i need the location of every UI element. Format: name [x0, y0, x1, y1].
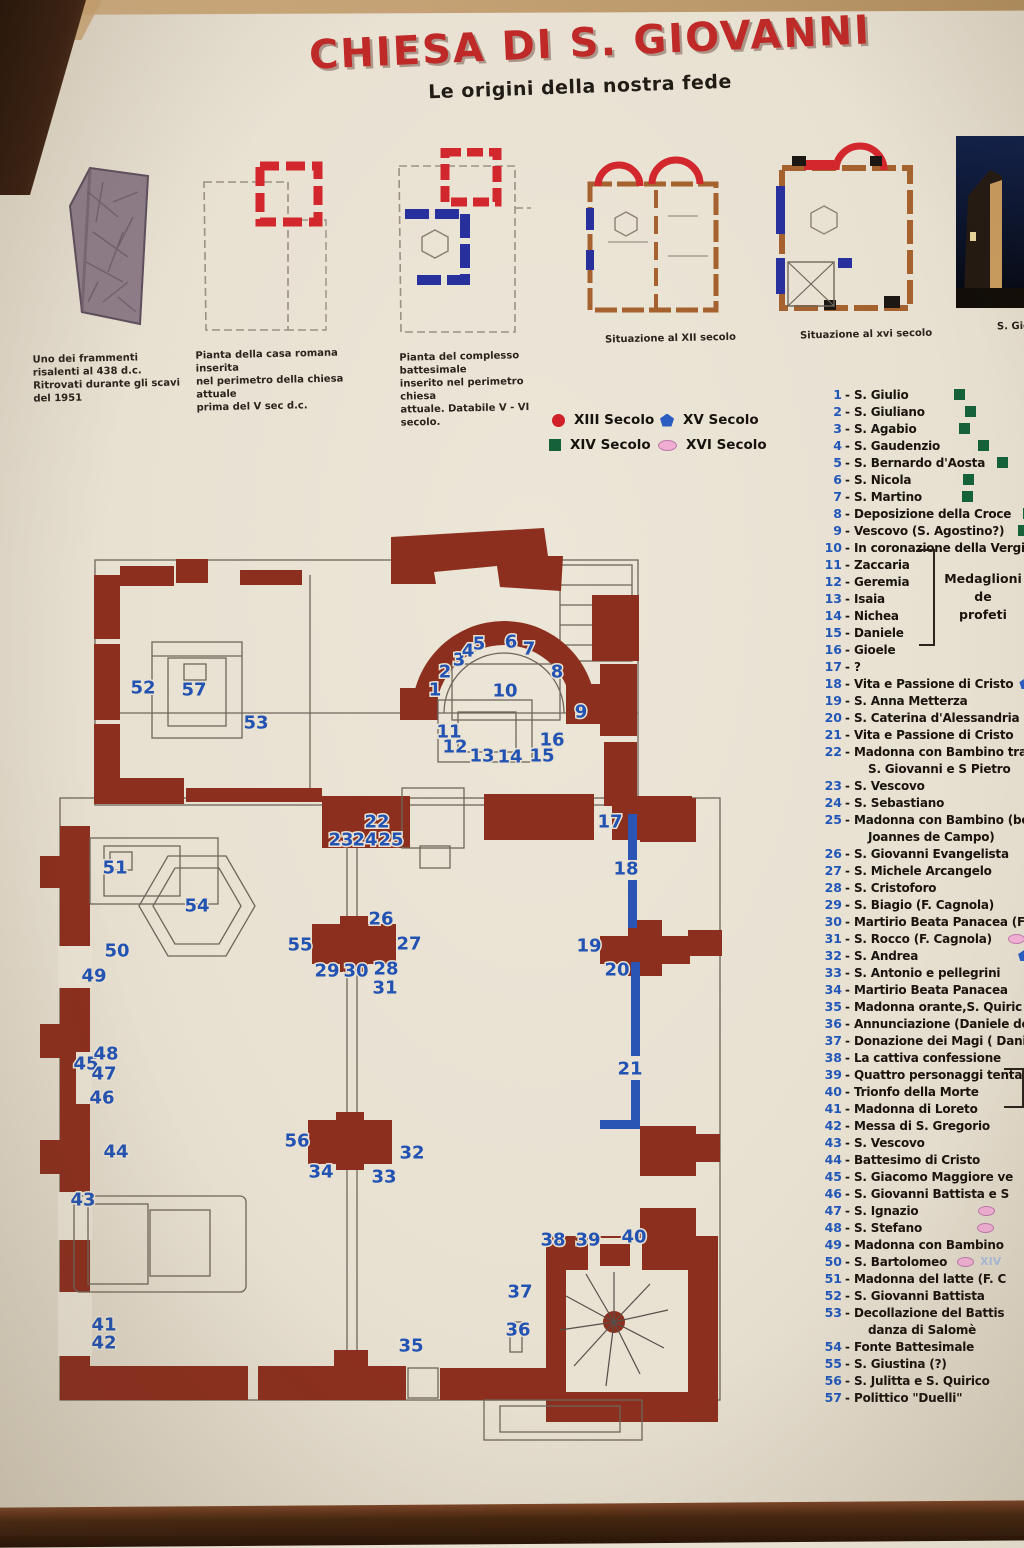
item-number: 50 — [816, 1254, 842, 1269]
list-item-21: 21-Vita e Passione di Cristo — [816, 726, 1024, 743]
item-number: 12 — [816, 574, 842, 589]
list-item-36: 36-Annunciazione (Daniele de — [816, 1015, 1024, 1032]
item-dash: - — [845, 915, 850, 929]
item-dash: - — [845, 1102, 850, 1116]
item-text-wrap: danza di Salomè — [868, 1323, 976, 1337]
item-number: 45 — [816, 1169, 842, 1184]
item-dash: - — [845, 1357, 850, 1371]
green-square-marker — [963, 474, 974, 485]
list-item-32: 32-S. Andrea — [816, 947, 1024, 964]
list-item-22: 22-Madonna con Bambino tra — [816, 743, 1024, 760]
item-dash: - — [845, 1374, 850, 1388]
list-item-37: 37-Donazione dei Magi ( Dani — [816, 1032, 1024, 1049]
plan-number-56: 56 — [284, 1131, 309, 1152]
item-number: 37 — [816, 1033, 842, 1048]
item-dash: - — [845, 643, 850, 657]
item-number: 49 — [816, 1237, 842, 1252]
item-text: S. Anna Metterza — [854, 694, 968, 708]
item-number: 17 — [816, 659, 842, 674]
artwork-list: 1-S. Giulio2-S. Giuliano3-S. Agabio4-S. … — [816, 386, 1024, 1416]
item-text: S. Giacomo Maggiore ve — [854, 1170, 1013, 1184]
list-item-42: 42-Messa di S. Gregorio — [816, 1117, 1024, 1134]
item-text: S. Caterina d'Alessandria — [854, 711, 1019, 725]
item-dash: - — [845, 1051, 850, 1065]
item-text: Vita e Passione di Cristo — [854, 728, 1013, 742]
item-number: 9 — [816, 523, 842, 538]
list-item-44: 44-Battesimo di Cristo — [816, 1151, 1024, 1168]
item-text: Battesimo di Cristo — [854, 1153, 980, 1167]
item-text: Madonna con Bambino tra — [854, 745, 1024, 759]
item-dash: - — [845, 473, 850, 487]
item-number: 1 — [816, 387, 842, 402]
item-number: 5 — [816, 455, 842, 470]
item-number: 20 — [816, 710, 842, 725]
plan-number-5: 5 — [473, 634, 486, 655]
plan-number-50: 50 — [104, 941, 129, 962]
list-item-9: 9-Vescovo (S. Agostino?) — [816, 522, 1024, 539]
item-dash: - — [845, 1187, 850, 1201]
plan-number-18: 18 — [613, 859, 638, 880]
item-dash: - — [845, 1391, 850, 1405]
pink-ellipse-marker — [978, 1206, 995, 1216]
item-text: S. Nicola — [854, 473, 911, 487]
item-number: 16 — [816, 642, 842, 657]
item-number: 31 — [816, 931, 842, 946]
list-item-34: 34-Martirio Beata Panacea — [816, 981, 1024, 998]
item-number: 44 — [816, 1152, 842, 1167]
plan-number-25: 25 — [378, 830, 403, 851]
item-text: S. Giovanni Evangelista — [854, 847, 1009, 861]
item-dash: - — [845, 626, 850, 640]
item-number: 32 — [816, 948, 842, 963]
item-number: 27 — [816, 863, 842, 878]
list-item-55: 55-S. Giustina (?) — [816, 1355, 1024, 1372]
item-number: 25 — [816, 812, 842, 827]
item-number: 11 — [816, 557, 842, 572]
plan-number-14: 14 — [497, 747, 522, 768]
item-dash: - — [845, 1170, 850, 1184]
item-number: 8 — [816, 506, 842, 521]
item-number: 53 — [816, 1305, 842, 1320]
list-item-31: 31-S. Rocco (F. Cagnola) — [816, 930, 1024, 947]
item-dash: - — [845, 1136, 850, 1150]
list-item-40: 40-Trionfo della Morte — [816, 1083, 1024, 1100]
item-number: 40 — [816, 1084, 842, 1099]
blue-pent-marker — [1018, 950, 1024, 961]
item-dash: - — [845, 932, 850, 946]
list-item-48: 48-S. Stefano — [816, 1219, 1024, 1236]
item-dash: - — [845, 439, 850, 453]
item-number: 55 — [816, 1356, 842, 1371]
item-text: Decollazione del Battis — [854, 1306, 1004, 1320]
item-number: 47 — [816, 1203, 842, 1218]
item-dash: - — [845, 813, 850, 827]
list-item-3: 3-S. Agabio — [816, 420, 1024, 437]
item-text: Vescovo (S. Agostino?) — [854, 524, 1004, 538]
plan-number-37: 37 — [507, 1282, 532, 1303]
item-dash: - — [845, 677, 850, 691]
plan-number-54: 54 — [184, 896, 209, 917]
plan-number-39: 39 — [575, 1230, 600, 1251]
green-square-marker — [965, 406, 976, 417]
item-dash: - — [845, 1238, 850, 1252]
plan-number-51: 51 — [102, 858, 127, 879]
plan-number-13: 13 — [469, 746, 494, 767]
item-dash: - — [845, 422, 850, 436]
plan-number-46: 46 — [89, 1088, 114, 1109]
plan-number-36: 36 — [505, 1320, 530, 1341]
plan-number-12: 12 — [442, 737, 467, 758]
plan-number-10: 10 — [492, 681, 517, 702]
item-number: 2 — [816, 404, 842, 419]
item-text: S. Stefano — [854, 1221, 922, 1235]
list-item-17: 17-? — [816, 658, 1024, 675]
item-text: S. Giustina (?) — [854, 1357, 947, 1371]
list-item-53-wrap: danza di Salomè — [816, 1321, 1024, 1338]
item-number: 48 — [816, 1220, 842, 1235]
item-dash: - — [845, 541, 850, 555]
item-text: Fonte Battesimale — [854, 1340, 974, 1354]
item-dash: - — [845, 1272, 850, 1286]
item-text: S. Michele Arcangelo — [854, 864, 992, 878]
list-item-8: 8-Deposizione della Croce — [816, 505, 1024, 522]
item-dash: - — [845, 1221, 850, 1235]
item-text: Nichea — [854, 609, 899, 623]
item-dash: - — [845, 694, 850, 708]
plan-number-31: 31 — [372, 978, 397, 999]
item-number: 13 — [816, 591, 842, 606]
list-item-41: 41-Madonna di Loreto — [816, 1100, 1024, 1117]
item-text: Deposizione della Croce — [854, 507, 1011, 521]
item-number: 35 — [816, 999, 842, 1014]
item-dash: - — [845, 1068, 850, 1082]
item-number: 43 — [816, 1135, 842, 1150]
plan-number-28: 28 — [373, 959, 398, 980]
item-dash: - — [845, 779, 850, 793]
plan-number-40: 40 — [621, 1227, 646, 1248]
item-text: S. Biagio (F. Cagnola) — [854, 898, 994, 912]
item-text: Madonna di Loreto — [854, 1102, 978, 1116]
plan-number-2: 2 — [439, 662, 452, 683]
green-square-marker — [1018, 525, 1024, 536]
item-text: Martirio Beata Panacea (F — [854, 915, 1024, 929]
list-item-43: 43-S. Vescovo — [816, 1134, 1024, 1151]
plan-number-43: 43 — [70, 1190, 95, 1211]
item-number: 22 — [816, 744, 842, 759]
item-dash: - — [845, 966, 850, 980]
item-dash: - — [845, 405, 850, 419]
item-text: ? — [854, 660, 861, 674]
item-text: Quattro personaggi tenta — [854, 1068, 1022, 1082]
item-number: 23 — [816, 778, 842, 793]
item-dash: - — [845, 524, 850, 538]
plan-number-30: 30 — [343, 961, 368, 982]
item-text: Gioele — [854, 643, 895, 657]
item-text: Madonna con Bambino (bott — [854, 813, 1024, 827]
plan-location-numbers: 1234567891011121314151617181920212223242… — [70, 632, 646, 1357]
plan-number-6: 6 — [505, 632, 518, 653]
item-text: S. Gaudenzio — [854, 439, 940, 453]
item-number: 21 — [816, 727, 842, 742]
plan-number-23: 23 — [328, 830, 353, 851]
list-item-25-wrap: Joannes de Campo) — [816, 828, 1024, 845]
list-item-20: 20-S. Caterina d'Alessandria — [816, 709, 1024, 726]
item-text: S. Giulio — [854, 388, 909, 402]
list-item-53: 53-Decollazione del Battis — [816, 1304, 1024, 1321]
item-dash: - — [845, 1306, 850, 1320]
item-number: 14 — [816, 608, 842, 623]
item-dash: - — [845, 558, 850, 572]
list-item-1: 1-S. Giulio — [816, 386, 1024, 403]
item-number: 3 — [816, 421, 842, 436]
item-number: 38 — [816, 1050, 842, 1065]
list-item-49: 49-Madonna con Bambino — [816, 1236, 1024, 1253]
item-number: 34 — [816, 982, 842, 997]
item-number: 51 — [816, 1271, 842, 1286]
item-dash: - — [845, 728, 850, 742]
list-item-47: 47-S. Ignazio — [816, 1202, 1024, 1219]
item-text-wrap: Joannes de Campo) — [868, 830, 995, 844]
items-41-42-bracket — [1004, 1068, 1024, 1108]
item-number: 24 — [816, 795, 842, 810]
item-dash: - — [845, 983, 850, 997]
plan-number-57: 57 — [181, 680, 206, 701]
item-dash: - — [845, 898, 850, 912]
item-dash: - — [845, 1340, 850, 1354]
item-dash: - — [845, 490, 850, 504]
item-number: 46 — [816, 1186, 842, 1201]
green-square-marker — [962, 491, 973, 502]
item-text: Madonna del latte (F. C — [854, 1272, 1006, 1286]
item-number: 19 — [816, 693, 842, 708]
faint-century-note: XIV — [980, 1255, 1001, 1268]
item-dash: - — [845, 847, 850, 861]
plan-number-21: 21 — [617, 1059, 642, 1080]
item-text: S. Bartolomeo — [854, 1255, 947, 1269]
list-item-38: 38-La cattiva confessione — [816, 1049, 1024, 1066]
plan-number-49: 49 — [81, 966, 106, 987]
item-text: S. Vescovo — [854, 779, 925, 793]
list-item-7: 7-S. Martino — [816, 488, 1024, 505]
item-dash: - — [845, 1034, 850, 1048]
item-text: S. Martino — [854, 490, 922, 504]
item-dash: - — [845, 388, 850, 402]
item-text: S. Giovanni Battista — [854, 1289, 985, 1303]
list-item-6: 6-S. Nicola — [816, 471, 1024, 488]
list-item-33: 33-S. Antonio e pellegrini — [816, 964, 1024, 981]
item-number: 54 — [816, 1339, 842, 1354]
item-dash: - — [845, 1153, 850, 1167]
plan-number-29: 29 — [314, 961, 339, 982]
list-item-56: 56-S. Julitta e S. Quirico — [816, 1372, 1024, 1389]
item-dash: - — [845, 864, 850, 878]
item-text: Vita e Passione di Cristo — [854, 677, 1013, 691]
item-text: S. Cristoforo — [854, 881, 936, 895]
pink-ellipse-marker — [977, 1223, 994, 1233]
item-dash: - — [845, 1017, 850, 1031]
item-number: 7 — [816, 489, 842, 504]
plan-number-26: 26 — [368, 909, 393, 930]
item-dash: - — [845, 1119, 850, 1133]
item-dash: - — [845, 1000, 850, 1014]
plan-number-16: 16 — [539, 730, 564, 751]
item-text: S. Vescovo — [854, 1136, 925, 1150]
item-number: 52 — [816, 1288, 842, 1303]
item-text: Martirio Beata Panacea — [854, 983, 1008, 997]
list-item-19: 19-S. Anna Metterza — [816, 692, 1024, 709]
item-dash: - — [845, 609, 850, 623]
item-dash: - — [845, 881, 850, 895]
blue-pent-marker — [1019, 678, 1024, 689]
item-text: Donazione dei Magi ( Dani — [854, 1034, 1024, 1048]
item-dash: - — [845, 796, 850, 810]
item-dash: - — [845, 592, 850, 606]
item-text: La cattiva confessione — [854, 1051, 1001, 1065]
list-item-26: 26-S. Giovanni Evangelista — [816, 845, 1024, 862]
list-item-18: 18-Vita e Passione di Cristo — [816, 675, 1024, 692]
list-item-25: 25-Madonna con Bambino (bott — [816, 811, 1024, 828]
item-text: Polittico "Duelli" — [854, 1391, 962, 1405]
item-dash: - — [845, 1289, 850, 1303]
list-item-2: 2-S. Giuliano — [816, 403, 1024, 420]
plan-number-20: 20 — [604, 960, 629, 981]
item-number: 42 — [816, 1118, 842, 1133]
list-item-30: 30-Martirio Beata Panacea (F — [816, 913, 1024, 930]
item-dash: - — [845, 711, 850, 725]
plan-number-52: 52 — [130, 678, 155, 699]
list-item-29: 29-S. Biagio (F. Cagnola) — [816, 896, 1024, 913]
prophets-label: Medaglioni de profeti — [942, 570, 1024, 624]
list-item-27: 27-S. Michele Arcangelo — [816, 862, 1024, 879]
item-text: Isaia — [854, 592, 885, 606]
item-number: 18 — [816, 676, 842, 691]
plan-number-24: 24 — [352, 830, 377, 851]
item-text: S. Andrea — [854, 949, 918, 963]
item-number: 28 — [816, 880, 842, 895]
item-text: S. Rocco (F. Cagnola) — [854, 932, 992, 946]
item-dash: - — [845, 660, 850, 674]
item-number: 4 — [816, 438, 842, 453]
plan-number-35: 35 — [398, 1336, 423, 1357]
plan-number-53: 53 — [243, 713, 268, 734]
plan-number-44: 44 — [103, 1142, 128, 1163]
plan-number-27: 27 — [396, 934, 421, 955]
item-text: Zaccaria — [854, 558, 910, 572]
item-dash: - — [845, 575, 850, 589]
item-number: 30 — [816, 914, 842, 929]
list-item-57: 57-Polittico "Duelli" — [816, 1389, 1024, 1406]
item-text: S. Giuliano — [854, 405, 925, 419]
green-square-marker — [959, 423, 970, 434]
item-dash: - — [845, 456, 850, 470]
plan-number-8: 8 — [551, 662, 564, 683]
plan-number-17: 17 — [597, 812, 622, 833]
item-text: S. Sebastiano — [854, 796, 944, 810]
list-item-24: 24-S. Sebastiano — [816, 794, 1024, 811]
plan-number-33: 33 — [371, 1167, 396, 1188]
item-number: 57 — [816, 1390, 842, 1405]
item-number: 39 — [816, 1067, 842, 1082]
plan-number-55: 55 — [287, 935, 312, 956]
item-text: Geremia — [854, 575, 909, 589]
item-number: 41 — [816, 1101, 842, 1116]
plan-number-7: 7 — [523, 639, 536, 660]
plan-number-47: 47 — [91, 1064, 116, 1085]
plan-number-42: 42 — [91, 1333, 116, 1354]
item-text: Trionfo della Morte — [854, 1085, 979, 1099]
green-square-marker — [954, 389, 965, 400]
item-text: S. Giovanni Battista e S — [854, 1187, 1009, 1201]
photographed-church-info-panel: { "header": { "title": "CHIESA DI S. GIO… — [0, 0, 1024, 1536]
prophets-bracket — [919, 549, 935, 646]
item-text: S. Julitta e S. Quirico — [854, 1374, 990, 1388]
item-text: Daniele — [854, 626, 904, 640]
list-item-39: 39-Quattro personaggi tenta — [816, 1066, 1024, 1083]
item-number: 15 — [816, 625, 842, 640]
item-text: Messa di S. Gregorio — [854, 1119, 990, 1133]
item-text: S. Agabio — [854, 422, 917, 436]
plan-number-34: 34 — [308, 1162, 333, 1183]
list-item-46: 46-S. Giovanni Battista e S — [816, 1185, 1024, 1202]
list-item-52: 52-S. Giovanni Battista — [816, 1287, 1024, 1304]
plan-number-1: 1 — [429, 680, 442, 701]
green-square-marker — [997, 457, 1008, 468]
plan-number-19: 19 — [576, 936, 601, 957]
item-number: 10 — [816, 540, 842, 555]
item-text: S. Ignazio — [854, 1204, 918, 1218]
item-number: 36 — [816, 1016, 842, 1031]
pink-ellipse-marker — [1008, 934, 1024, 944]
plan-number-32: 32 — [399, 1143, 424, 1164]
item-text-wrap: S. Giovanni e S Pietro — [868, 762, 1011, 776]
list-item-45: 45-S. Giacomo Maggiore ve — [816, 1168, 1024, 1185]
list-item-28: 28-S. Cristoforo — [816, 879, 1024, 896]
item-text: S. Bernardo d'Aosta — [854, 456, 985, 470]
item-text: In coronazione della Vergine — [854, 541, 1024, 555]
list-item-54: 54-Fonte Battesimale — [816, 1338, 1024, 1355]
item-number: 29 — [816, 897, 842, 912]
item-dash: - — [845, 949, 850, 963]
list-item-22-wrap: S. Giovanni e S Pietro — [816, 760, 1024, 777]
item-dash: - — [845, 1204, 850, 1218]
list-item-51: 51-Madonna del latte (F. C — [816, 1270, 1024, 1287]
item-number: 33 — [816, 965, 842, 980]
green-square-marker — [978, 440, 989, 451]
item-dash: - — [845, 1085, 850, 1099]
plan-number-9: 9 — [575, 702, 588, 723]
item-number: 56 — [816, 1373, 842, 1388]
list-item-50: 50-S. BartolomeoXIV — [816, 1253, 1024, 1270]
item-number: 6 — [816, 472, 842, 487]
list-item-4: 4-S. Gaudenzio — [816, 437, 1024, 454]
plan-number-48: 48 — [93, 1044, 118, 1065]
item-number: 26 — [816, 846, 842, 861]
item-text: Annunciazione (Daniele de — [854, 1017, 1024, 1031]
item-dash: - — [845, 1255, 850, 1269]
pink-ellipse-marker — [957, 1257, 974, 1267]
item-dash: - — [845, 745, 850, 759]
item-dash: - — [845, 507, 850, 521]
list-item-23: 23-S. Vescovo — [816, 777, 1024, 794]
list-item-35: 35-Madonna orante,S. Quiric — [816, 998, 1024, 1015]
plan-number-38: 38 — [540, 1230, 565, 1251]
item-text: S. Antonio e pellegrini — [854, 966, 1000, 980]
list-item-5: 5-S. Bernardo d'Aosta — [816, 454, 1024, 471]
item-text: Madonna orante,S. Quiric — [854, 1000, 1022, 1014]
item-text: Madonna con Bambino — [854, 1238, 1004, 1252]
